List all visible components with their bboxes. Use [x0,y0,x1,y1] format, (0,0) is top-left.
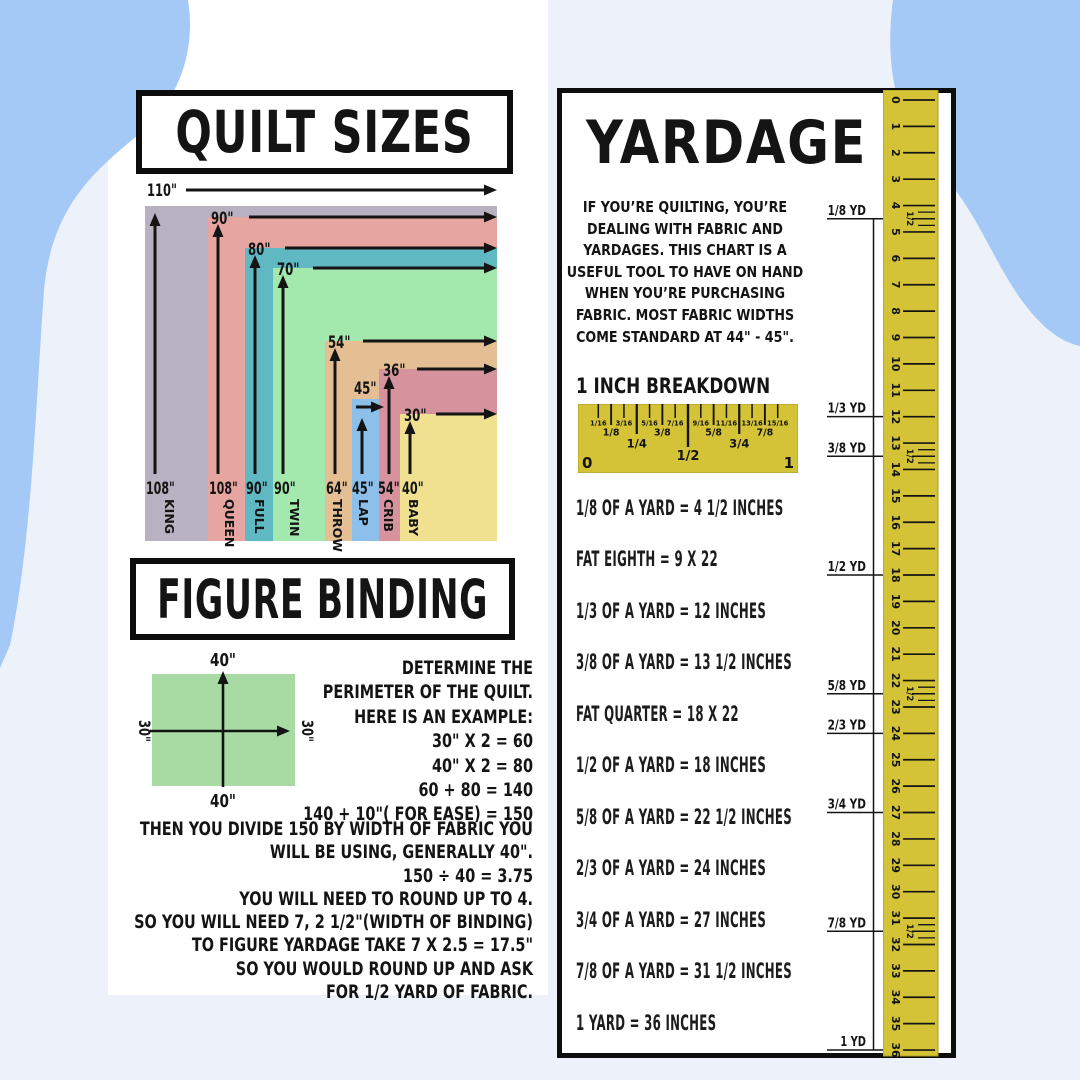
ruler-inch-number: 35 [889,1016,902,1031]
conversion-item: FAT QUARTER = 18 X 22 [576,702,739,726]
binding-bottom-label: 40" [210,791,236,812]
ruler-half-label: 1/2 [904,449,914,464]
quilt-width-label: 110" [147,181,177,201]
quilt-height-label: 108" [209,479,238,499]
ruler-inch-number: 30 [889,884,902,900]
binding-line: PERIMETER OF THE QUILT. [240,681,533,705]
yard-marker-label: 7/8 YD [828,916,867,931]
ruler-inch-number: 16 [889,515,902,531]
ruler-inch-number: 23 [889,699,902,714]
binding-instructions-continued: THEN YOU DIVIDE 150 BY WIDTH OF FABRIC Y… [112,818,533,1004]
ruler-inch-number: 26 [889,778,902,794]
intro-line: WHEN YOU’RE PURCHASING [562,283,808,305]
ruler-inch-number: 0 [889,96,902,104]
inch-breakdown-heading: 1 INCH BREAKDOWN [576,374,770,398]
binding-line: YOU WILL NEED TO ROUND UP TO 4. [112,888,533,911]
one-inch-breakdown-ruler: 1/161/83/161/45/163/87/161/29/165/811/16… [578,404,798,473]
conversion-item: 3/4 OF A YARD = 27 INCHES [576,908,766,932]
quilt-width-label: 45" [354,379,377,399]
ruler-inch-number: 12 [889,409,902,424]
binding-line: FOR 1/2 YARD OF FABRIC. [112,981,533,1004]
quilt-name-label: THROW [330,499,345,552]
figure-binding-title-box: FIGURE BINDING [130,558,515,640]
quilt-height-label: 90" [274,479,296,499]
ruler-inch-number: 6 [889,255,902,263]
binding-line: 60 + 80 = 140 [240,779,533,803]
yard-marker-label: 3/8 YD [828,441,867,456]
intro-line: DEALING WITH FABRIC AND [562,219,808,241]
inch-ruler-zero: 0 [582,454,592,472]
binding-top-label: 40" [210,650,236,671]
ruler-inch-number: 5 [889,228,902,236]
quilt-sizes-title: QUILT SIZES [175,98,473,166]
quilt-width-label: 80" [248,240,271,260]
ruler-inch-number: 24 [889,726,902,742]
binding-line: TO FIGURE YARDAGE TAKE 7 X 2.5 = 17.5" [112,934,533,957]
quilt-height-label: 90" [246,479,268,499]
ruler-inch-number: 34 [889,990,902,1006]
ruler-inch-number: 33 [889,963,902,978]
yard-marker-label: 1 YD [840,1035,866,1050]
binding-instructions-block: DETERMINE THEPERIMETER OF THE QUILT.HERE… [240,657,533,828]
quilt-height-label: 108" [146,479,175,499]
quilt-width-label: 30" [404,406,427,426]
ruler-inch-number: 1 [889,123,902,131]
ruler-inch-number: 15 [889,488,902,503]
inch-fraction-label: 1/8 [603,428,620,439]
ruler-inch-number: 3 [889,175,902,183]
inch-fraction-label: 13/16 [741,420,763,428]
yard-marker-label: 3/4 YD [828,798,867,813]
intro-line: USEFUL TOOL TO HAVE ON HAND [562,262,808,284]
quilt-sizes-title-box: QUILT SIZES [136,90,513,174]
quilt-width-label: 90" [211,209,234,229]
ruler-inch-number: 11 [889,383,902,398]
yard-marker-label: 2/3 YD [828,718,867,733]
conversion-item: 1/3 OF A YARD = 12 INCHES [576,599,766,623]
vertical-inch-ruler: 0123456789101112131415161718192021222324… [883,90,939,1058]
inch-fraction-label: 11/16 [716,420,738,428]
ruler-inch-number: 22 [889,673,902,688]
inch-ruler-one: 1 [784,454,794,472]
ruler-inch-number: 36 [889,1042,902,1058]
yard-marker-label: 1/2 YD [828,560,867,575]
inch-fraction-label: 7/8 [757,428,774,439]
quilt-height-label: 54" [378,479,400,499]
ruler-inch-number: 20 [889,620,902,636]
binding-line: DETERMINE THE [240,657,533,681]
ruler-inch-number: 21 [889,647,902,662]
yardage-title: YARDAGE [586,108,867,178]
conversion-item: FAT EIGHTH = 9 X 22 [576,547,718,571]
binding-line: SO YOU WILL NEED 7, 2 1/2"(WIDTH OF BIND… [112,911,533,934]
quilt-height-label: 64" [326,479,348,499]
conversion-item: 1 YARD = 36 INCHES [576,1011,716,1035]
conversion-item: 2/3 OF A YARD = 24 INCHES [576,856,766,880]
inch-fraction-label: 3/4 [729,437,749,451]
conversion-item: 5/8 OF A YARD = 22 1/2 INCHES [576,805,792,829]
yard-marker-label: 5/8 YD [828,679,867,694]
figure-binding-title: FIGURE BINDING [157,568,488,631]
inch-fraction-label: 1/16 [590,420,607,428]
quilt-height-label: 40" [402,479,424,499]
ruler-inch-number: 2 [889,149,902,157]
binding-line: WILL BE USING, GENERALLY 40". [112,841,533,864]
inch-fraction-label: 1/4 [627,437,647,451]
yardage-intro-paragraph: IF YOU’RE QUILTING, YOU’REDEALING WITH F… [562,197,808,348]
conversion-item: 1/8 OF A YARD = 4 1/2 INCHES [576,496,783,520]
ruler-inch-number: 13 [889,435,902,450]
binding-line: 30" X 2 = 60 [240,730,533,754]
intro-line: YARDAGES. THIS CHART IS A [562,240,808,262]
binding-line: 150 ÷ 40 = 3.75 [112,865,533,888]
quilt-name-label: QUEEN [222,499,237,547]
quilt-width-label: 54" [328,333,351,353]
quilt-width-label: 70" [277,260,300,280]
ruler-inch-number: 4 [889,202,902,210]
ruler-inch-number: 17 [889,541,902,556]
ruler-inch-number: 8 [889,307,902,315]
ruler-inch-number: 10 [889,356,902,372]
inch-fraction-label: 5/8 [705,428,722,439]
quilt-height-label: 45" [352,479,374,499]
quilt-name-label: TWIN [287,499,302,536]
quilt-name-label: CRIB [381,499,396,532]
ruler-inch-number: 18 [889,567,902,582]
ruler-inch-number: 29 [889,858,902,873]
ruler-inch-number: 32 [889,937,902,952]
ruler-inch-number: 31 [889,910,902,925]
inch-fraction-label: 9/16 [692,420,709,428]
arrowhead-right [484,185,497,196]
quilt-width-label: 36" [383,361,406,381]
ruler-half-label: 1/2 [904,686,914,701]
ruler-inch-number: 9 [889,334,902,342]
binding-line: SO YOU WOULD ROUND UP AND ASK [112,958,533,981]
binding-line: THEN YOU DIVIDE 150 BY WIDTH OF FABRIC Y… [112,818,533,841]
ruler-inch-number: 7 [889,281,902,289]
quilt-name-label: KING [162,499,177,534]
intro-line: COME STANDARD AT 44" - 45". [562,327,808,349]
inch-fraction-label: 1/2 [677,449,700,464]
ruler-half-label: 1/2 [904,924,914,939]
quilt-yardage-infographic: { "page": { "bg": "#edf1fa", "blob_color… [0,0,1080,1080]
quilt-name-label: BABY [406,499,421,537]
conversion-item: 1/2 OF A YARD = 18 INCHES [576,753,766,777]
inch-fraction-label: 5/16 [641,420,658,428]
yard-marker-label: 1/3 YD [828,402,867,417]
ruler-inch-number: 27 [889,805,902,820]
binding-left-label: 30" [135,720,154,742]
intro-line: FABRIC. MOST FABRIC WIDTHS [562,305,808,327]
inch-fraction-label: 3/8 [654,428,671,439]
yard-marker-label: 1/8 YD [828,204,867,219]
ruler-inch-number: 28 [889,831,902,846]
intro-line: IF YOU’RE QUILTING, YOU’RE [562,197,808,219]
ruler-inch-number: 14 [889,462,902,478]
binding-line: HERE IS AN EXAMPLE: [240,706,533,730]
binding-line: 40" X 2 = 80 [240,755,533,779]
conversion-item: 7/8 OF A YARD = 31 1/2 INCHES [576,959,792,983]
ruler-inch-number: 19 [889,594,902,609]
inch-fraction-label: 3/16 [616,420,633,428]
quilt-name-label: FULL [252,499,267,534]
ruler-inch-number: 25 [889,752,902,767]
quilt-name-label: LAP [356,499,371,526]
inch-fraction-label: 7/16 [667,420,684,428]
inch-fraction-label: 15/16 [767,420,789,428]
quilt-sizes-chart: 110"108"KING90"108"QUEEN80"90"FULL70"90"… [138,178,504,556]
ruler-half-label: 1/2 [904,211,914,226]
conversion-item: 3/8 OF A YARD = 13 1/2 INCHES [576,650,792,674]
